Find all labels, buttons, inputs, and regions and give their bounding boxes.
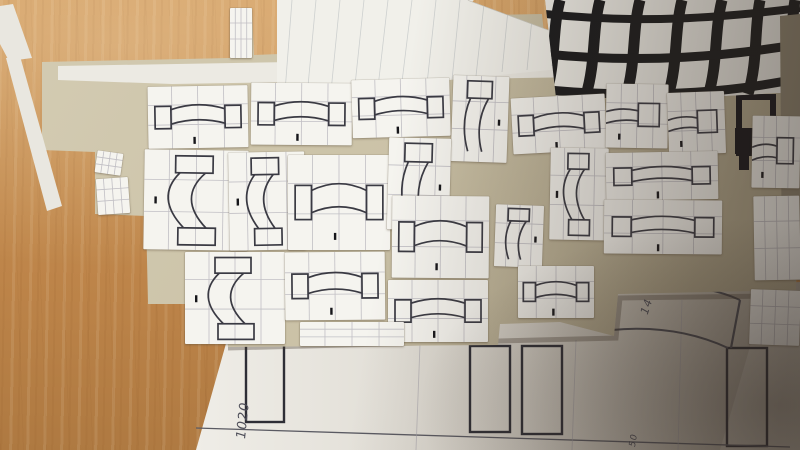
sketch-card bbox=[285, 252, 386, 321]
paper-scrap bbox=[96, 177, 130, 215]
sketch-card bbox=[549, 148, 609, 241]
sketch-card bbox=[667, 91, 726, 155]
sketch-card bbox=[751, 116, 800, 189]
paper-scrap bbox=[749, 289, 800, 346]
sketch-card bbox=[604, 199, 722, 254]
sketch-card bbox=[251, 83, 353, 146]
sketch-card bbox=[518, 266, 594, 318]
desk-photo: 1020 14 50 bbox=[0, 0, 800, 450]
paper-sliver-corner bbox=[0, 4, 32, 61]
sketch-card bbox=[494, 204, 544, 268]
paper-scrap bbox=[230, 8, 252, 58]
sketch-card bbox=[351, 78, 450, 139]
sketch-card bbox=[185, 252, 285, 344]
paper-scrap bbox=[95, 150, 124, 175]
sketch-card bbox=[605, 83, 668, 148]
sketch-card bbox=[451, 75, 510, 163]
paper-scrap bbox=[300, 322, 404, 346]
sketch-card bbox=[147, 85, 248, 149]
sketch-card bbox=[392, 196, 490, 279]
sketch-card bbox=[511, 94, 608, 155]
black-grid-paper-warped bbox=[545, 0, 800, 98]
paper-scrap bbox=[753, 196, 800, 281]
sketch-card bbox=[606, 151, 719, 201]
sketch-card bbox=[288, 155, 390, 250]
